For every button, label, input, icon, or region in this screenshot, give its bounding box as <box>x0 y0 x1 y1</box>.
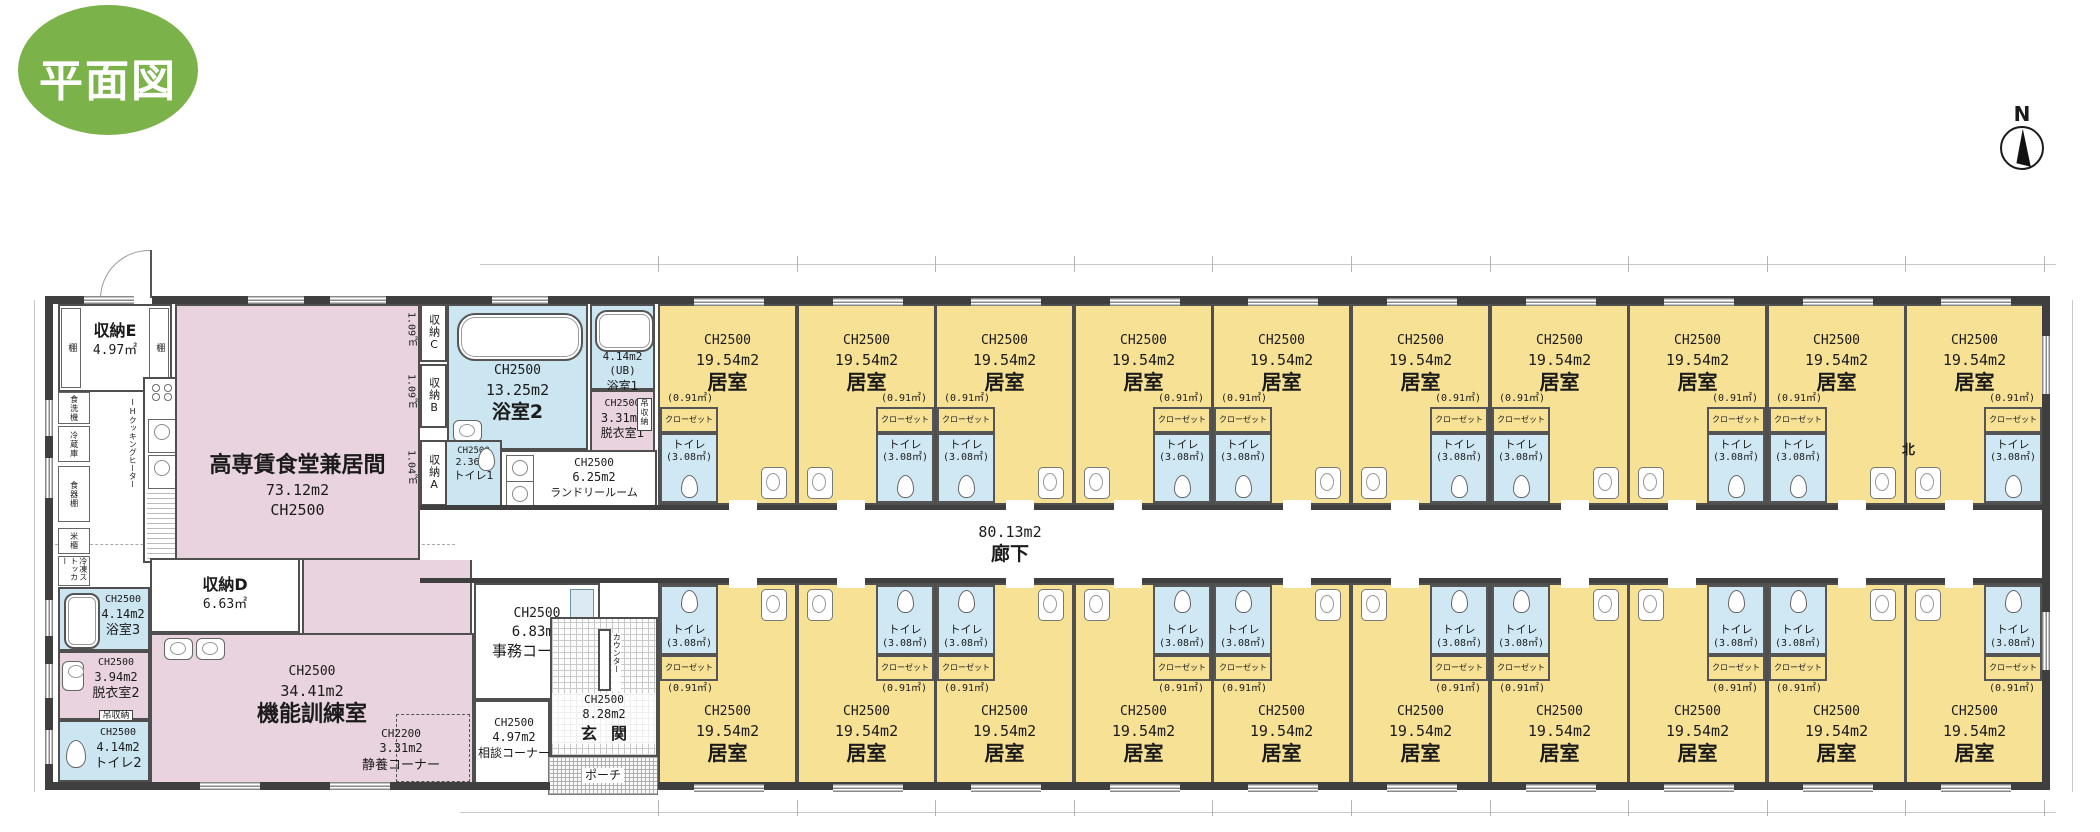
room-labels: CH2500 19.54m2 居室 <box>1769 332 1904 395</box>
bath3-ch: CH2500 <box>96 594 150 607</box>
closet-label: クローゼット <box>1774 663 1822 672</box>
dimension-tick <box>1628 800 1629 816</box>
toilet-labels: トイレ (3.08㎡) <box>943 623 989 650</box>
washbasin-icon <box>807 467 833 499</box>
guest-room: CH2500 19.54m2 居室 (0.91㎡) クローゼット トイレ (3.… <box>1628 583 1767 786</box>
room-dress2: CH2500 3.94m2 脱衣室2 吊収納 <box>58 651 150 720</box>
stove-icon <box>149 382 175 402</box>
toilet-labels: トイレ (3.08㎡) <box>882 623 928 650</box>
dimension-tick <box>1490 256 1491 272</box>
room-bath1: 4.14m2 (UB) 浴室1 <box>590 304 655 390</box>
washbasin-icon <box>1084 467 1110 499</box>
laundry-name: ランドリールーム <box>536 486 652 500</box>
guest-room: CH2500 19.54m2 居室 (0.91㎡) クローゼット トイレ (3.… <box>1351 304 1490 505</box>
room-ch-label: CH2500 <box>799 332 934 350</box>
dimension-tick <box>1628 256 1629 272</box>
guest-room: CH2500 19.54m2 居室 (0.91㎡) クローゼット トイレ (3.… <box>1905 304 2044 505</box>
toilet-area-label: (3.08㎡) <box>1498 452 1544 465</box>
room-area-label: 19.54m2 <box>1907 350 2042 370</box>
bath3-area: 4.14m2 <box>96 607 150 623</box>
closet: クローゼット <box>876 407 934 433</box>
toilet-icon <box>2005 590 2022 613</box>
toilet-icon <box>1790 475 1807 498</box>
dimension-tick <box>1212 256 1213 272</box>
toilet-icon <box>958 475 975 498</box>
closet: クローゼット <box>1984 407 2042 433</box>
closet-label: クローゼット <box>1989 415 2037 424</box>
closet: クローゼット <box>1214 407 1272 433</box>
storage-d-area: 6.63㎡ <box>152 596 298 614</box>
counter-hatch <box>147 493 175 559</box>
storage-a-name: 収納A <box>426 454 440 492</box>
toilet-area-label: (3.08㎡) <box>882 638 928 651</box>
washbasin-icon <box>1315 589 1341 621</box>
exterior-wall-bottom-left <box>45 782 550 790</box>
room-door-opening <box>1391 578 1419 588</box>
room-door-opening <box>1668 578 1696 588</box>
guest-room: CH2500 19.54m2 居室 (0.91㎡) クローゼット トイレ (3.… <box>1212 304 1351 505</box>
room-name-label: 居室 <box>937 741 1072 766</box>
dress1-hanging-storage: 吊収納 <box>637 398 652 431</box>
kitchen-sink-2 <box>148 455 176 489</box>
dress2-ch: CH2500 <box>82 657 150 670</box>
closet: クローゼット <box>1769 655 1827 681</box>
window <box>971 784 1041 792</box>
washbasin-icon <box>761 589 787 621</box>
toilet-icon <box>1174 475 1191 498</box>
room-ch-label: CH2500 <box>1353 703 1488 721</box>
toilet-area-label: (3.08㎡) <box>882 452 928 465</box>
guest-room: CH2500 19.54m2 居室 (0.91㎡) クローゼット トイレ (3.… <box>1767 583 1906 786</box>
toilet-labels: トイレ (3.08㎡) <box>1436 623 1482 650</box>
toilet-icon <box>1174 590 1191 613</box>
storage-c-name: 収納C <box>426 314 440 352</box>
shelf-label: 棚 <box>66 343 77 353</box>
closet-area-label: (0.91㎡) <box>1212 683 1276 696</box>
toilet-icon <box>1728 475 1745 498</box>
room-labels: CH2500 19.54m2 居室 <box>1907 332 2042 395</box>
toilet-icon <box>1513 590 1530 613</box>
room-storage-d: 収納D 6.63㎡ <box>150 558 300 633</box>
closet: クローゼット <box>937 655 995 681</box>
room-area-label: 19.54m2 <box>1353 721 1488 741</box>
closet-area-label: (0.91㎡) <box>1980 683 2044 696</box>
toilet-labels: トイレ (3.08㎡) <box>1775 623 1821 650</box>
shelf-left: 棚 <box>61 308 81 388</box>
floor-plan: 平面図 N 収納E 4.97㎡ 棚 棚 食洗機 冷蔵庫 食器棚 <box>0 0 2100 832</box>
storage-b-name: 収納B <box>426 377 440 415</box>
room-labels: CH2500 19.54m2 居室 <box>660 332 795 395</box>
window <box>1110 784 1180 792</box>
dining-name: 高専賃食堂兼居間 <box>177 452 418 480</box>
room-dining-living: 高専賃食堂兼居間 73.12m2 CH2500 <box>175 304 420 560</box>
dimension-tick <box>1351 256 1352 272</box>
washbasin-icon <box>1915 589 1941 621</box>
toilet-area-label: (3.08㎡) <box>1436 452 1482 465</box>
rest-name: 静養コーナー <box>331 757 471 775</box>
toilet-labels: トイレ (3.08㎡) <box>1990 623 2036 650</box>
dimension-tick <box>1767 256 1768 272</box>
room-area-label: 19.54m2 <box>660 350 795 370</box>
closet: クローゼット <box>1214 655 1272 681</box>
toilet-area-label: (3.08㎡) <box>1713 638 1759 651</box>
freezer-label: 冷凍ストッカー <box>60 557 88 585</box>
toilet-labels: トイレ (3.08㎡) <box>1775 438 1821 465</box>
training-sink-2 <box>196 638 225 660</box>
toilet-area-label: (3.08㎡) <box>1775 452 1821 465</box>
room-name-label: 居室 <box>1769 370 1904 395</box>
room-area-label: 19.54m2 <box>1492 721 1627 741</box>
closet-label: クローゼット <box>1712 663 1760 672</box>
rest-area: 3.31m2 <box>331 741 471 757</box>
toilet-label: トイレ <box>1220 438 1266 452</box>
room-door-opening <box>729 578 757 588</box>
toilet-labels: トイレ (3.08㎡) <box>666 438 712 465</box>
dimension-tick <box>1490 800 1491 816</box>
dimension-tick <box>935 256 936 272</box>
room-name-label: 居室 <box>660 741 795 766</box>
toilet-label: トイレ <box>666 623 712 637</box>
closet-label: クローゼット <box>1435 415 1483 424</box>
laundry-area: 6.25m2 <box>536 470 652 486</box>
room-toilet: トイレ (3.08㎡) <box>660 585 718 655</box>
room-labels: CH2500 19.54m2 居室 <box>799 332 934 395</box>
toilet-label: トイレ <box>1775 438 1821 452</box>
room-ch-label: CH2500 <box>937 703 1072 721</box>
dining-area: 73.12m2 <box>177 480 418 500</box>
dress2-area: 3.94m2 <box>82 670 150 686</box>
room-toilet: トイレ (3.08㎡) <box>937 433 995 503</box>
room-area-label: 19.54m2 <box>937 350 1072 370</box>
washbasin-icon <box>1038 589 1064 621</box>
toilet-labels: トイレ (3.08㎡) <box>943 438 989 465</box>
room-labels: CH2500 19.54m2 居室 <box>1907 703 2042 766</box>
washbasin-icon <box>1593 467 1619 499</box>
room-storage-c: 収納C <box>420 304 447 362</box>
washbasin-icon <box>1593 589 1619 621</box>
bath1-ub: (UB) <box>592 364 653 378</box>
toilet-labels: トイレ (3.08㎡) <box>1436 438 1482 465</box>
closet-area-label: (0.91㎡) <box>1767 393 1831 406</box>
storage-d-name: 収納D <box>152 574 298 596</box>
window <box>330 296 386 304</box>
dishwasher: 食洗機 <box>58 392 90 424</box>
room-toilet: トイレ (3.08㎡) <box>1153 585 1211 655</box>
room-name-label: 居室 <box>660 370 795 395</box>
toilet1-name: トイレ1 <box>447 469 500 483</box>
room-ch-label: CH2500 <box>937 332 1072 350</box>
room-door-opening <box>729 500 757 510</box>
closet: クローゼット <box>1430 655 1488 681</box>
window <box>2042 336 2050 394</box>
toilet-icon <box>897 475 914 498</box>
closet: クローゼット <box>937 407 995 433</box>
toilet2-ch: CH2500 <box>88 727 148 740</box>
freezer-stocker: 冷凍ストッカー <box>58 556 90 586</box>
closet-label: クローゼット <box>881 663 929 672</box>
dimension-tick <box>1074 800 1075 816</box>
toilet-icon <box>66 740 86 768</box>
dimension-tick <box>1905 256 1906 272</box>
room-bath3: CH2500 4.14m2 浴室3 <box>58 587 150 651</box>
toilet-label: トイレ <box>1990 438 2036 452</box>
washer-icon-2 <box>506 481 534 508</box>
rice-bin-label: 米櫃 <box>69 532 78 550</box>
entrance-ch: CH2500 <box>552 693 656 707</box>
room-labels: CH2500 19.54m2 居室 <box>1630 703 1765 766</box>
toilet-area-label: (3.08㎡) <box>1159 452 1205 465</box>
toilet-labels: トイレ (3.08㎡) <box>1498 438 1544 465</box>
training-ch: CH2500 <box>152 663 472 681</box>
toilet-label: トイレ <box>882 623 928 637</box>
room-door-opening <box>1945 578 1973 588</box>
room-toilet: トイレ (3.08㎡) <box>1430 585 1488 655</box>
toilet2-name: トイレ2 <box>88 755 148 773</box>
dimension-tick <box>2044 256 2045 272</box>
shelf-label: 棚 <box>154 343 165 353</box>
room-area-label: 19.54m2 <box>937 721 1072 741</box>
rest-corner: CH2200 3.31m2 静養コーナー <box>396 714 470 782</box>
toilet-label: トイレ <box>943 623 989 637</box>
room-toilet: トイレ (3.08㎡) <box>660 433 718 503</box>
toilet-labels: トイレ (3.08㎡) <box>1220 623 1266 650</box>
window <box>45 400 53 436</box>
window <box>45 730 53 764</box>
closet-area-label: (0.91㎡) <box>658 683 722 696</box>
corridor-wall-bottom <box>420 578 2046 583</box>
toilet-label: トイレ <box>1436 438 1482 452</box>
dimension-tick <box>1351 800 1352 816</box>
room-area-label: 19.54m2 <box>799 721 934 741</box>
toilet-label: トイレ <box>1498 438 1544 452</box>
room-area-label: 19.54m2 <box>660 721 795 741</box>
toilet-area-label: (3.08㎡) <box>1990 638 2036 651</box>
room-toilet1: CH2500 2.36m2 トイレ1 <box>445 440 502 509</box>
room-area-label: 19.54m2 <box>1769 350 1904 370</box>
toilet-label: トイレ <box>1498 623 1544 637</box>
room-area-label: 19.54m2 <box>1076 721 1211 741</box>
guest-room: CH2500 19.54m2 居室 (0.91㎡) クローゼット トイレ (3.… <box>797 583 936 786</box>
guest-room: CH2500 19.54m2 居室 (0.91㎡) クローゼット トイレ (3.… <box>1074 583 1213 786</box>
toilet-icon <box>897 590 914 613</box>
room-toilet: トイレ (3.08㎡) <box>1492 433 1550 503</box>
room-labels: CH2500 19.54m2 居室 <box>1214 703 1349 766</box>
room-area-label: 19.54m2 <box>1214 721 1349 741</box>
bath3-name: 浴室3 <box>96 622 150 640</box>
dishwasher-label: 食洗機 <box>69 395 78 422</box>
closet-area-label: (0.91㎡) <box>1426 683 1490 696</box>
toilet-label: トイレ <box>1775 623 1821 637</box>
closet-label: クローゼット <box>1774 415 1822 424</box>
toilet-area-label: (3.08㎡) <box>1713 452 1759 465</box>
window <box>971 298 1041 306</box>
room-labels: CH2500 19.54m2 居室 <box>1353 332 1488 395</box>
closet-area-label: (0.91㎡) <box>1703 393 1767 406</box>
window <box>1664 298 1734 306</box>
room-name-label: 居室 <box>799 370 934 395</box>
office-sink-icon <box>570 589 594 619</box>
room-area-label: 19.54m2 <box>1769 721 1904 741</box>
fridge-label: 冷蔵庫 <box>69 431 78 458</box>
toilet-icon <box>2005 475 2022 498</box>
room-labels: CH2500 19.54m2 居室 <box>1214 332 1349 395</box>
window <box>492 296 548 304</box>
room-storage-a: 収納A <box>420 440 447 506</box>
closet-label: クローゼット <box>1219 415 1267 424</box>
toilet-labels: トイレ (3.08㎡) <box>1713 438 1759 465</box>
fridge: 冷蔵庫 <box>58 426 90 462</box>
guest-room: CH2500 19.54m2 居室 (0.91㎡) クローゼット トイレ (3.… <box>1490 304 1629 505</box>
toilet-labels: トイレ (3.08㎡) <box>1990 438 2036 465</box>
bathtub-icon <box>457 313 583 361</box>
room-door-opening <box>1114 500 1142 510</box>
rest-ch: CH2200 <box>331 727 471 741</box>
storage-c-area: 1.09㎡ <box>404 312 417 360</box>
room-area-label: 19.54m2 <box>1076 350 1211 370</box>
window <box>84 296 134 304</box>
entrance-area: 8.28m2 <box>552 707 656 723</box>
room-ch-label: CH2500 <box>1214 703 1349 721</box>
room-area-label: 19.54m2 <box>1630 350 1765 370</box>
exterior-wall-left <box>45 296 53 790</box>
toilet-label: トイレ <box>943 438 989 452</box>
guest-room: CH2500 19.54m2 居室 (0.91㎡) クローゼット トイレ (3.… <box>1351 583 1490 786</box>
shelf-right: 棚 <box>149 308 169 388</box>
entrance-counter <box>598 629 611 691</box>
closet-label: クローゼット <box>942 415 990 424</box>
guest-room: CH2500 19.54m2 居室 (0.91㎡) クローゼット トイレ (3.… <box>1628 304 1767 505</box>
closet: クローゼット <box>660 407 718 433</box>
entrance-counter-label: カウンター <box>612 633 621 691</box>
room-toilet2: CH2500 4.14m2 トイレ2 <box>58 720 150 782</box>
room-ch-label: CH2500 <box>1353 332 1488 350</box>
window <box>1941 784 2011 792</box>
closet-label: クローゼット <box>1497 415 1545 424</box>
dress2-name: 脱衣室2 <box>82 685 150 703</box>
closet-label: クローゼット <box>1158 415 1206 424</box>
window <box>200 782 260 790</box>
room-toilet: トイレ (3.08㎡) <box>1153 433 1211 503</box>
room-labels: CH2500 19.54m2 居室 <box>1353 703 1488 766</box>
room-labels: CH2500 19.54m2 居室 <box>1076 703 1211 766</box>
guest-room: CH2500 19.54m2 居室 (0.91㎡) クローゼット トイレ (3.… <box>1074 304 1213 505</box>
room-door-opening <box>1283 578 1311 588</box>
toilet-area-label: (3.08㎡) <box>1436 638 1482 651</box>
room-ch-label: CH2500 <box>1769 703 1904 721</box>
cupboard: 食器棚 <box>58 466 90 522</box>
closet-area-label: (0.91㎡) <box>1212 393 1276 406</box>
window <box>1110 298 1180 306</box>
room-name-label: 居室 <box>937 370 1072 395</box>
window <box>45 600 53 636</box>
training-sink-1 <box>164 638 193 660</box>
closet-area-label: (0.91㎡) <box>1980 393 2044 406</box>
washbasin-icon <box>1638 467 1664 499</box>
guest-room: CH2500 19.54m2 居室 (0.91㎡) クローゼット トイレ (3.… <box>797 304 936 505</box>
bath2-area: 13.25m2 <box>449 380 586 400</box>
closet-area-label: (0.91㎡) <box>658 393 722 406</box>
toilet-labels: トイレ (3.08㎡) <box>1159 438 1205 465</box>
entry-door-arc <box>100 250 151 299</box>
room-toilet: トイレ (3.08㎡) <box>1769 433 1827 503</box>
closet-label: クローゼット <box>881 415 929 424</box>
room-ch-label: CH2500 <box>1492 703 1627 721</box>
dimension-tick <box>2044 800 2045 816</box>
bath2-sink-icon <box>453 420 482 442</box>
washbasin-icon <box>1361 467 1387 499</box>
washbasin-icon <box>1084 589 1110 621</box>
closet-label: クローゼット <box>1219 663 1267 672</box>
room-labels: CH2500 19.54m2 居室 <box>937 703 1072 766</box>
closet-label: クローゼット <box>1497 663 1545 672</box>
washer-icon-1 <box>506 455 534 482</box>
room-ch-label: CH2500 <box>1907 703 2042 721</box>
toilet-labels: トイレ (3.08㎡) <box>1498 623 1544 650</box>
guest-room: CH2500 19.54m2 居室 (0.91㎡) クローゼット トイレ (3.… <box>1905 583 2044 786</box>
toilet-icon <box>1513 475 1530 498</box>
window <box>1664 784 1734 792</box>
toilet-area-label: (3.08㎡) <box>1990 452 2036 465</box>
room-toilet: トイレ (3.08㎡) <box>876 585 934 655</box>
toilet-icon <box>1790 590 1807 613</box>
ih-heater-label: IHクッキングヒーター <box>128 398 137 490</box>
room-name-label: 居室 <box>1907 741 2042 766</box>
kitchen-sink-1 <box>148 419 176 453</box>
room-entrance: カウンター CH2500 8.28m2 玄関 <box>550 617 658 757</box>
room-name-label: 居室 <box>1353 741 1488 766</box>
room-toilet: トイレ (3.08㎡) <box>1492 585 1550 655</box>
room-toilet: トイレ (3.08㎡) <box>1430 433 1488 503</box>
toilet-labels: トイレ (3.08㎡) <box>1220 438 1266 465</box>
window <box>45 664 53 698</box>
window <box>1387 784 1457 792</box>
room-door-opening <box>1838 578 1866 588</box>
toilet-icon <box>1451 475 1468 498</box>
room-toilet: トイレ (3.08㎡) <box>1707 585 1765 655</box>
closet-area-label: (0.91㎡) <box>1767 683 1831 696</box>
room-area-label: 19.54m2 <box>799 350 934 370</box>
washbasin-icon <box>761 467 787 499</box>
room-labels: CH2500 19.54m2 居室 <box>660 703 795 766</box>
closet: クローゼット <box>1707 655 1765 681</box>
toilet-label: トイレ <box>1713 623 1759 637</box>
window <box>1803 784 1873 792</box>
toilet-area-label: (3.08㎡) <box>666 452 712 465</box>
window <box>1248 298 1318 306</box>
toilet-label: トイレ <box>666 438 712 452</box>
window <box>248 296 304 304</box>
washbasin-icon <box>1915 467 1941 499</box>
entry-door-leaf <box>150 250 152 298</box>
room-door-opening <box>1561 578 1589 588</box>
room-toilet: トイレ (3.08㎡) <box>1769 585 1827 655</box>
room-name-label: 居室 <box>1492 370 1627 395</box>
room-door-opening <box>1114 578 1142 588</box>
room-ch-label: CH2500 <box>1492 332 1627 350</box>
compass-needle <box>2002 128 2042 168</box>
toilet-area-label: (3.08㎡) <box>1159 638 1205 651</box>
toilet-area-label: (3.08㎡) <box>666 638 712 651</box>
room-ch-label: CH2500 <box>1076 703 1211 721</box>
room-toilet: トイレ (3.08㎡) <box>1984 433 2042 503</box>
closet-label: クローゼット <box>665 415 713 424</box>
dimension-tick <box>1212 800 1213 816</box>
guest-room: CH2500 19.54m2 居室 (0.91㎡) クローゼット トイレ (3.… <box>935 583 1074 786</box>
guest-room: CH2500 19.54m2 居室 (0.91㎡) クローゼット トイレ (3.… <box>658 583 797 786</box>
room-ch-label: CH2500 <box>1630 332 1765 350</box>
room-area-label: 19.54m2 <box>1907 721 2042 741</box>
closet: クローゼット <box>1153 655 1211 681</box>
